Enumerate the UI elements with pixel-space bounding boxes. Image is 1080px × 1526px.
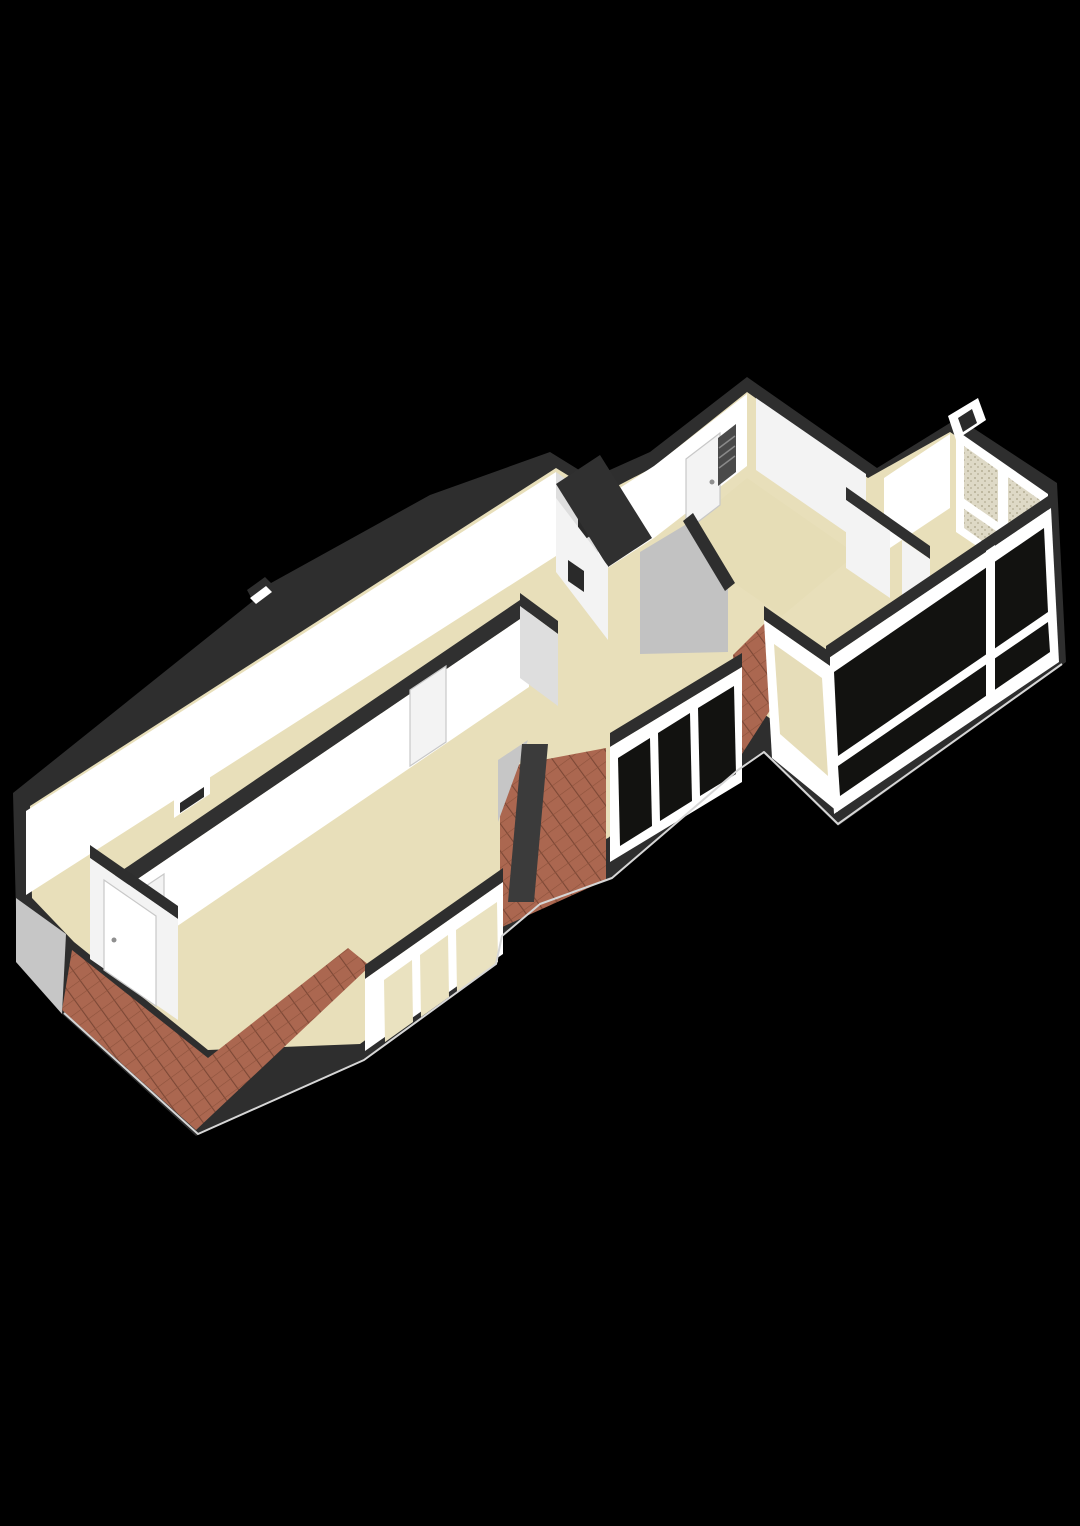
floorplan-svg (0, 0, 1080, 1526)
floorplan-3d-render (0, 0, 1080, 1526)
left-front-door-handle (112, 938, 117, 943)
right-window-mullion (986, 545, 995, 708)
entry-door-handle (710, 480, 715, 485)
